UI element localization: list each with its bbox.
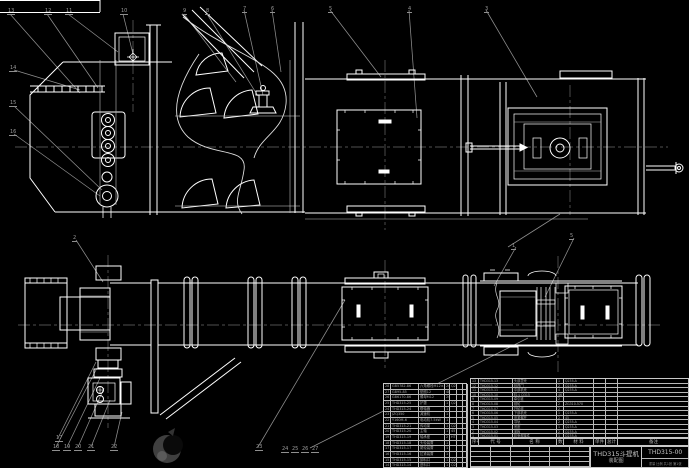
signature-cell <box>511 462 531 467</box>
bom-cell: 14 <box>384 463 391 468</box>
signature-cell <box>530 462 550 467</box>
balloon-callout: 15 <box>9 101 17 107</box>
title-block-number: THD315-00 重量 比例 共1张 第1张 <box>642 447 688 467</box>
bom-cell: THD315-14 <box>391 463 419 468</box>
balloon-callout: 8 <box>205 9 210 15</box>
bom-table-right: 13THD315-13头部罩壳1Q235-A12THD315-12检视门2Q23… <box>470 378 689 438</box>
balloon-callout: 22 <box>110 445 118 451</box>
balloon-callout: 3 <box>484 7 489 13</box>
title-block: THD315斗提机 装配图 THD315-00 重量 比例 共1张 第1张 <box>470 446 689 468</box>
drawing-info-row: 重量 比例 共1张 第1张 <box>642 459 688 468</box>
balloon-callout: 1 <box>511 244 516 250</box>
balloon-callout: 21 <box>87 445 95 451</box>
balloon-callout: 4 <box>407 7 412 13</box>
balloon-callout: 10 <box>120 9 128 15</box>
cad-drawing-page: 1312111098765431415162151718192021222324… <box>0 0 689 468</box>
balloon-callout: 23 <box>255 445 263 451</box>
balloon-callout: 24 <box>281 447 289 453</box>
balloon-callout: 18 <box>52 445 60 451</box>
signature-grid <box>471 447 590 467</box>
balloon-callout: 19 <box>63 445 71 451</box>
bom-cell <box>463 463 468 468</box>
balloon-callout: 14 <box>9 66 17 72</box>
title-block-name: THD315斗提机 装配图 <box>590 447 643 467</box>
bom-cell: 进料口 <box>419 463 445 468</box>
balloon-callout: 16 <box>9 130 17 136</box>
centerlines <box>15 20 668 428</box>
signature-cell <box>471 462 491 467</box>
balloon-callout: 11 <box>65 9 73 15</box>
signature-cell <box>550 462 570 467</box>
bom-table-left: 28GB5782-86六角螺栓M12×4524Q23527GB95-85垫圈12… <box>383 383 467 468</box>
balloon-callout: 25 <box>291 447 299 453</box>
signature-cell <box>491 462 511 467</box>
drawing-type: 装配图 <box>609 458 624 465</box>
signature-cell <box>570 462 590 467</box>
balloon-callout: 5 <box>328 7 333 13</box>
balloon-callout: 2 <box>72 236 77 242</box>
bom-cell: Q235-A <box>450 463 457 468</box>
drawing-number: THD315-00 <box>642 447 688 459</box>
balloon-callout: 26 <box>301 447 309 453</box>
product-title: THD315斗提机 <box>593 450 639 458</box>
bom-header-row: 序号代 号名 称数量材 料单件总计备注 <box>470 438 689 446</box>
balloon-callout: 5 <box>569 234 574 240</box>
balloon-callout: 9 <box>182 9 187 15</box>
balloon-callout: 12 <box>44 9 52 15</box>
balloon-callout: 7 <box>242 7 247 13</box>
balloon-callout: 20 <box>74 445 82 451</box>
logo-watermark <box>153 428 183 463</box>
top-view-elevation <box>30 7 683 219</box>
balloon-callout: 17 <box>55 436 63 442</box>
balloon-callout: 13 <box>7 9 15 15</box>
balloon-callout: 27 <box>311 447 319 453</box>
balloon-callout: 6 <box>270 7 275 13</box>
